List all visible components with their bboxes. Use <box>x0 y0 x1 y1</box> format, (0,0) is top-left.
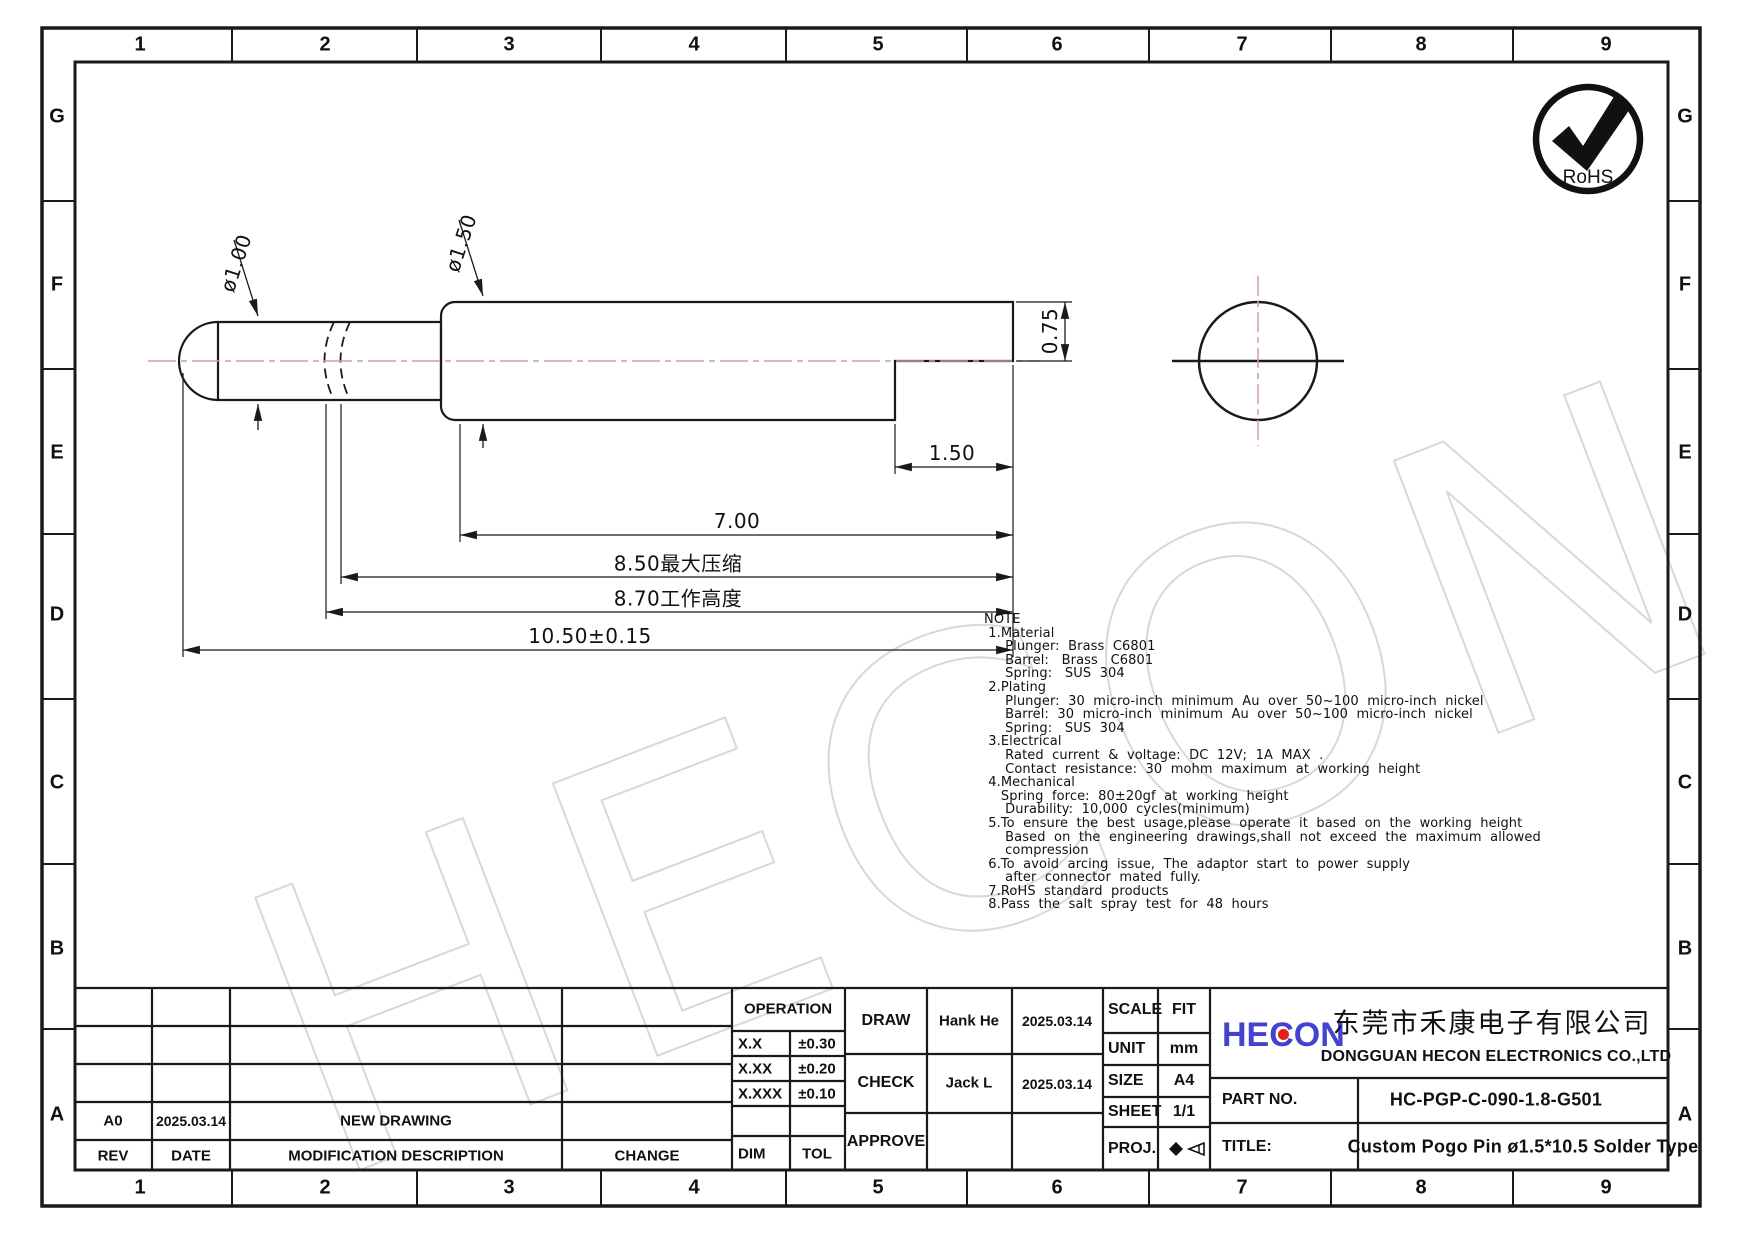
grid-row-label: D <box>50 604 64 627</box>
grid-row-label: C <box>50 772 64 795</box>
rohs-logo: RoHS <box>1536 87 1640 191</box>
grid-row-label: G <box>1677 106 1693 129</box>
dim-max-compression: 8.50最大压缩 <box>614 548 743 577</box>
title-value: Custom Pogo Pin ø1.5*10.5 Solder Type <box>1348 1137 1699 1158</box>
check-date: 2025.03.14 <box>1022 1076 1092 1092</box>
tolerance-dim: X.X <box>738 1036 762 1053</box>
grid-row-label: F <box>51 274 63 297</box>
grid-row-label: E <box>50 442 63 465</box>
grid-row-label: G <box>49 106 65 129</box>
grid-col-label: 8 <box>1415 34 1426 57</box>
rev-value: A0 <box>103 1113 122 1130</box>
dim-tail-length: 1.50 <box>929 441 976 465</box>
draw-date: 2025.03.14 <box>1022 1013 1092 1029</box>
grid-row-label: A <box>1678 1104 1692 1127</box>
grid-col-label: 6 <box>1051 34 1062 57</box>
tolerance-dim: X.XX <box>738 1061 772 1078</box>
rev-description-value: NEW DRAWING <box>340 1113 452 1130</box>
modification-description-header: MODIFICATION DESCRIPTION <box>288 1148 504 1165</box>
grid-col-label: 7 <box>1236 34 1247 57</box>
draw-name: Hank He <box>939 1013 999 1030</box>
part-no-label: PART NO. <box>1222 1091 1297 1109</box>
grid-col-label: 2 <box>319 1177 330 1200</box>
grid-col-label: 1 <box>134 34 145 57</box>
dim-total-length: 10.50±0.15 <box>528 624 652 648</box>
grid-col-label: 3 <box>503 34 514 57</box>
grid-row-label: B <box>1678 938 1692 961</box>
part-no-value: HC-PGP-C-090-1.8-G501 <box>1390 1090 1602 1111</box>
hecon-logo-dot-icon <box>1278 1029 1289 1040</box>
change-header: CHANGE <box>614 1148 679 1165</box>
grid-col-label: 6 <box>1051 1177 1062 1200</box>
grid-col-label: 3 <box>503 1177 514 1200</box>
date-header: DATE <box>171 1148 211 1165</box>
scale-label: SCALE <box>1108 1001 1162 1019</box>
grid-col-label: 5 <box>872 34 883 57</box>
grid-row-label: B <box>50 938 64 961</box>
grid-row-label: F <box>1679 274 1691 297</box>
grid-col-label: 5 <box>872 1177 883 1200</box>
operation-header: OPERATION <box>744 1001 832 1018</box>
rohs-label: RoHS <box>1563 167 1614 188</box>
scale-value: FIT <box>1172 1001 1196 1019</box>
proj-label: PROJ. <box>1108 1140 1156 1158</box>
grid-row-label: A <box>50 1104 64 1127</box>
rev-date-value: 2025.03.14 <box>156 1113 226 1129</box>
dim-working-height: 8.70工作高度 <box>614 583 743 612</box>
unit-value: mm <box>1170 1040 1198 1058</box>
title-label: TITLE: <box>1222 1138 1272 1156</box>
tolerance-value: ±0.10 <box>798 1086 835 1103</box>
sheet-value: 1/1 <box>1173 1103 1195 1121</box>
dim-footer-label: DIM <box>738 1146 766 1163</box>
grid-col-label: 7 <box>1236 1177 1247 1200</box>
dim-tail-height: 0.75 <box>1038 308 1062 355</box>
rev-header: REV <box>98 1148 129 1165</box>
rohs-checkmark-icon <box>1552 95 1632 171</box>
check-name: Jack L <box>946 1075 993 1092</box>
grid-col-label: 1 <box>134 1177 145 1200</box>
grid-row-label: C <box>1678 772 1692 795</box>
company-name-en: DONGGUAN HECON ELECTRONICS CO.,LTD <box>1321 1048 1672 1066</box>
grid-col-label: 4 <box>688 1177 699 1200</box>
grid-col-label: 9 <box>1600 34 1611 57</box>
dim-barrel-length: 7.00 <box>714 509 761 533</box>
grid-row-label: D <box>1678 604 1692 627</box>
tolerance-dim: X.XXX <box>738 1086 782 1103</box>
size-label: SIZE <box>1108 1072 1144 1090</box>
grid-col-label: 4 <box>688 34 699 57</box>
drawing-sheet: HECON <box>0 0 1754 1241</box>
grid-row-label: E <box>1678 442 1691 465</box>
unit-label: UNIT <box>1108 1040 1145 1058</box>
projection-symbol-icon <box>1169 1142 1204 1156</box>
grid-col-label: 9 <box>1600 1177 1611 1200</box>
tolerance-value: ±0.30 <box>798 1036 835 1053</box>
tol-footer-label: TOL <box>802 1146 832 1163</box>
draw-label: DRAW <box>862 1012 911 1030</box>
tolerance-value: ±0.20 <box>798 1061 835 1078</box>
company-name-cn: 东莞市禾康电子有限公司 <box>1333 1002 1652 1041</box>
grid-col-label: 2 <box>319 34 330 57</box>
grid-col-label: 8 <box>1415 1177 1426 1200</box>
sheet-label: SHEET <box>1108 1103 1161 1121</box>
approve-label: APPROVE <box>847 1133 925 1151</box>
check-label: CHECK <box>858 1074 915 1092</box>
notes-block: NOTE 1.Material Plunger: Brass C6801 Bar… <box>984 613 1541 912</box>
size-value: A4 <box>1174 1072 1194 1090</box>
